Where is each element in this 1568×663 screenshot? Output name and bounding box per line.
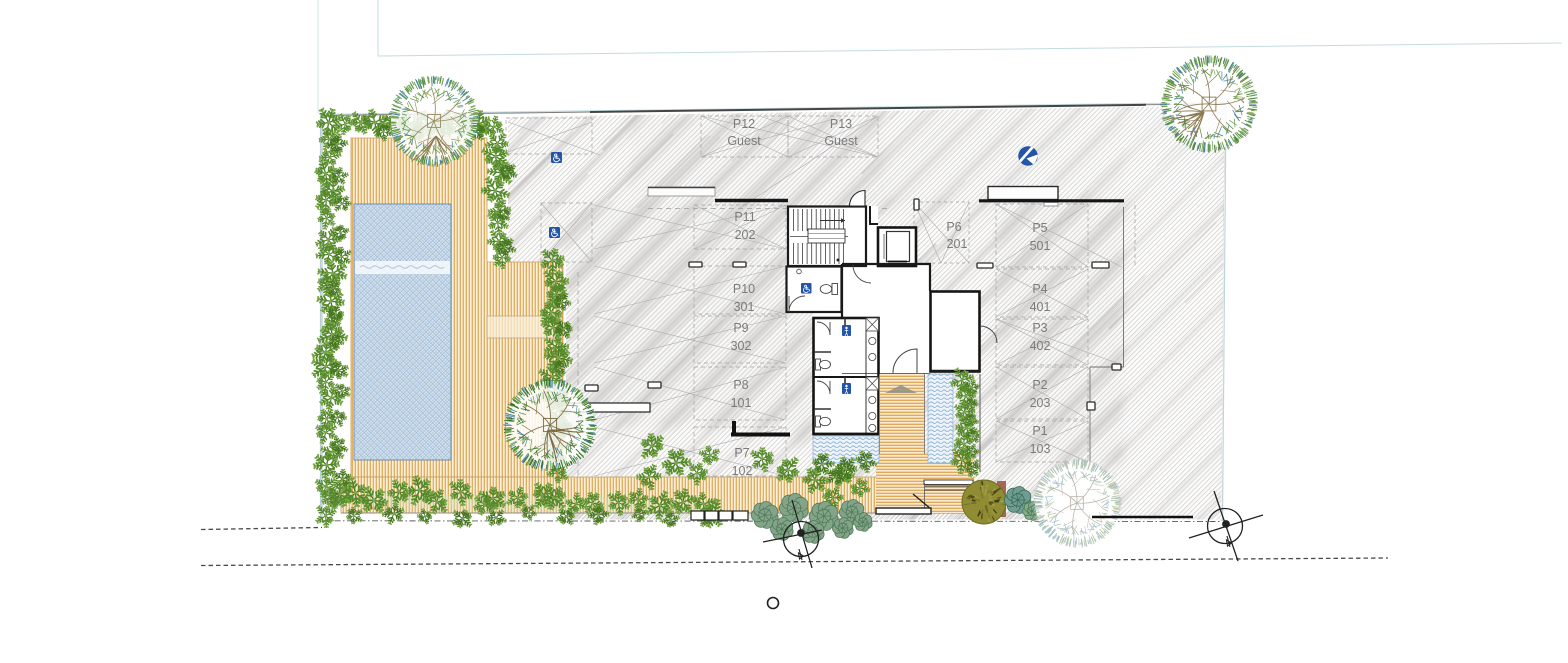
svg-text:402: 402: [1030, 339, 1051, 353]
svg-text:302: 302: [731, 339, 752, 353]
svg-text:P13: P13: [830, 117, 852, 131]
svg-text:P12: P12: [733, 117, 755, 131]
svg-text:P3: P3: [1032, 321, 1047, 335]
svg-text:P8: P8: [733, 378, 748, 392]
svg-text:202: 202: [735, 228, 756, 242]
svg-text:P2: P2: [1032, 378, 1047, 392]
svg-text:103: 103: [1030, 442, 1051, 456]
svg-text:301: 301: [734, 300, 755, 314]
svg-text:102: 102: [732, 464, 753, 478]
svg-text:P1: P1: [1032, 424, 1047, 438]
svg-text:P4: P4: [1032, 282, 1047, 296]
svg-text:P10: P10: [733, 282, 755, 296]
svg-text:P5: P5: [1032, 221, 1047, 235]
svg-text:501: 501: [1030, 239, 1051, 253]
svg-text:Guest: Guest: [727, 134, 761, 148]
svg-text:Guest: Guest: [824, 134, 858, 148]
svg-text:P11: P11: [734, 210, 755, 224]
svg-text:P7: P7: [734, 446, 749, 460]
svg-text:201: 201: [947, 237, 968, 251]
svg-text:101: 101: [731, 396, 752, 410]
svg-text:203: 203: [1030, 396, 1051, 410]
svg-text:401: 401: [1030, 300, 1051, 314]
svg-text:P9: P9: [733, 321, 748, 335]
svg-text:P6: P6: [946, 220, 961, 234]
